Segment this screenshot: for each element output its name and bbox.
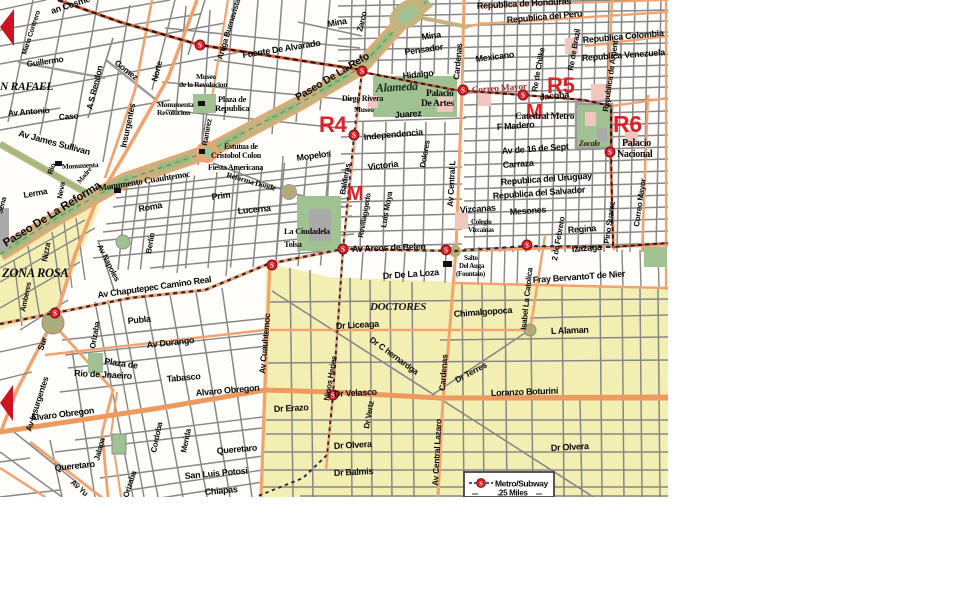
svg-text:S: S	[360, 68, 364, 76]
svg-text:Del Auga: Del Auga	[459, 262, 485, 270]
svg-text:Metro/Subway: Metro/Subway	[495, 479, 548, 489]
svg-text:S: S	[525, 242, 529, 250]
svg-text:Tolsa: Tolsa	[284, 239, 303, 249]
svg-text:S: S	[270, 262, 274, 270]
svg-text:De Artes: De Artes	[421, 99, 454, 109]
svg-text:Zocalo: Zocalo	[578, 139, 600, 148]
svg-text:.25 Miles: .25 Miles	[497, 489, 529, 498]
svg-text:S: S	[444, 247, 448, 255]
svg-text:Dr Olvera: Dr Olvera	[334, 439, 374, 451]
svg-text:Diego Rivera: Diego Rivera	[342, 94, 383, 103]
svg-text:R4: R4	[319, 112, 348, 137]
svg-text:S: S	[608, 149, 612, 157]
svg-text:Dr Olvera: Dr Olvera	[551, 441, 591, 453]
svg-text:Fiesta Americana: Fiesta Americana	[208, 163, 263, 172]
svg-text:S: S	[479, 481, 483, 488]
svg-text:M: M	[347, 183, 363, 205]
svg-text:Dr Erazo: Dr Erazo	[274, 402, 310, 414]
svg-text:S: S	[341, 246, 345, 254]
svg-text:Revolucion: Revolucion	[157, 108, 191, 117]
svg-text:(Fountain): (Fountain)	[456, 270, 486, 278]
svg-text:S: S	[461, 87, 465, 95]
svg-text:Nacional: Nacional	[617, 149, 653, 160]
svg-text:S: S	[352, 132, 356, 140]
svg-text:Vizcainas: Vizcainas	[468, 226, 494, 234]
svg-text:S: S	[521, 92, 525, 100]
svg-text:Dr Balmis: Dr Balmis	[334, 466, 374, 478]
svg-text:S: S	[198, 42, 202, 50]
svg-text:Regina: Regina	[567, 223, 597, 235]
svg-text:La Ciudadela: La Ciudadela	[284, 226, 331, 236]
svg-text:Palacio: Palacio	[622, 138, 651, 149]
svg-text:Colegio: Colegio	[471, 218, 492, 226]
svg-text:Republica: Republica	[215, 103, 250, 113]
svg-text:de la Revolucion: de la Revolucion	[179, 80, 228, 89]
svg-text:ZONA ROSA: ZONA ROSA	[1, 266, 68, 280]
svg-text:Palacio: Palacio	[426, 89, 454, 99]
svg-text:R6: R6	[613, 111, 642, 137]
svg-text:L Alaman: L Alaman	[551, 325, 589, 336]
svg-text:Cristobol Colon: Cristobol Colon	[211, 151, 262, 160]
svg-text:Salto: Salto	[464, 254, 478, 262]
svg-text:Alameda: Alameda	[374, 79, 418, 95]
svg-text:S: S	[53, 310, 57, 318]
svg-text:Estutua de: Estutua de	[224, 142, 258, 151]
svg-text:N RAFAEL: N RAFAEL	[0, 81, 53, 93]
svg-text:Caso: Caso	[58, 111, 78, 122]
svg-text:Juarez: Juarez	[394, 108, 422, 120]
svg-text:DOCTORES: DOCTORES	[369, 301, 426, 313]
svg-text:Museo: Museo	[354, 105, 374, 114]
